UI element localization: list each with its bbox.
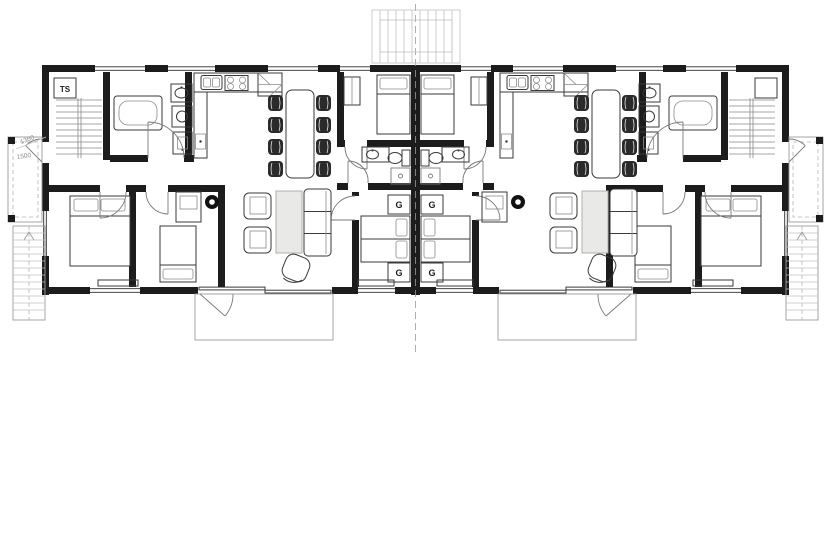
floor-plan-page: TS G G G G 1380 1500 bbox=[0, 0, 831, 555]
dimension-text: 1500 bbox=[16, 152, 32, 161]
floor-plan-canvas: TS G G G G 1380 1500 bbox=[0, 0, 831, 555]
right-unit-furnishings bbox=[482, 73, 637, 287]
dimension-annotation: 1380 1500 bbox=[16, 134, 46, 161]
pergola-icon bbox=[372, 10, 460, 63]
wardrobe-label: G bbox=[428, 268, 435, 278]
left-unit-furnishings bbox=[176, 73, 331, 287]
wardrobe-label: G bbox=[395, 268, 402, 278]
technical-space-label: TS bbox=[60, 85, 71, 94]
wardrobe-label: G bbox=[428, 200, 435, 210]
wardrobe-label: G bbox=[395, 200, 402, 210]
